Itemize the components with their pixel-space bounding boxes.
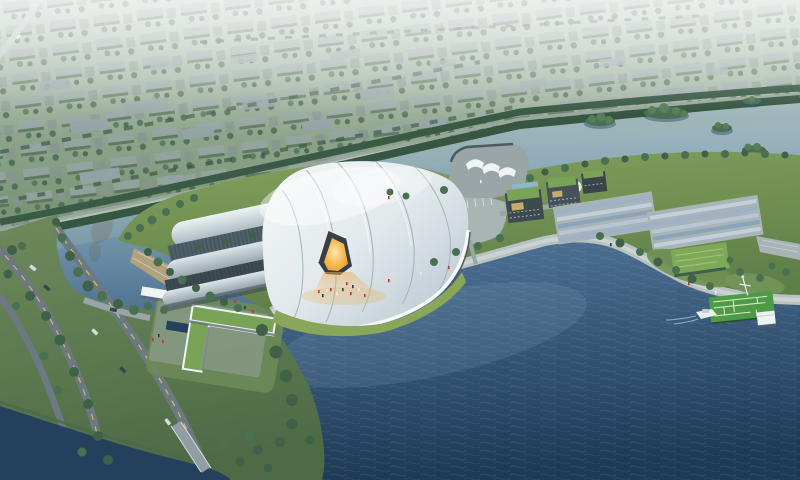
channel-reflection-2 xyxy=(89,242,101,262)
plaza-warm-light xyxy=(302,287,386,305)
aerial-rendering-canvas xyxy=(0,0,800,480)
boat-cabin xyxy=(702,309,709,313)
atmospheric-haze xyxy=(0,0,800,115)
pier-pavilion xyxy=(757,311,776,326)
rendering-stage xyxy=(0,0,800,480)
